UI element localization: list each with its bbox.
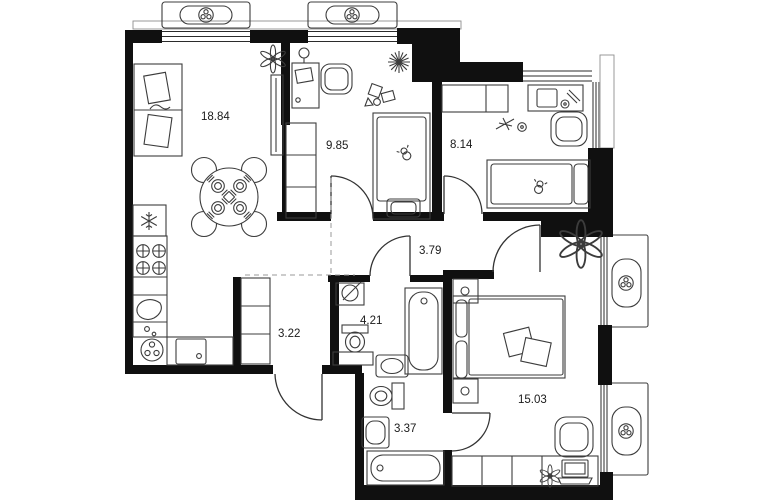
room-label-child-2: 8.14 — [450, 139, 473, 151]
room-label-living-kitchen: 18.84 — [201, 111, 230, 123]
snowflake-icon — [141, 212, 157, 230]
lamp-icon — [299, 48, 309, 58]
ac-unit-top-right — [308, 2, 397, 28]
wall-segment — [443, 275, 452, 375]
window-top-1 — [162, 30, 250, 43]
bathtub-1 — [405, 288, 442, 374]
fan-icon — [619, 424, 633, 438]
wall-segment — [355, 485, 613, 500]
bedroom-15-03 — [452, 220, 604, 487]
counter-sink — [176, 339, 206, 364]
floor-plan-canvas: 18.84 9.85 8.14 3.79 3.22 4.21 15.03 3.3… — [0, 0, 770, 500]
bathtub-2 — [367, 451, 444, 485]
toys-icon — [365, 84, 395, 106]
wardrobe-2 — [442, 85, 508, 112]
toy-icon — [531, 179, 547, 195]
fan-icon — [619, 276, 633, 290]
laptop-icon — [558, 460, 592, 484]
single-bed-1 — [373, 113, 430, 219]
desk-2 — [528, 85, 583, 111]
desk-1 — [292, 48, 319, 108]
door-room-9-85 — [331, 176, 373, 218]
door-bedroom — [493, 225, 540, 272]
wall-segment — [432, 82, 442, 213]
window-bedroom-right-1 — [600, 237, 608, 325]
wall-segment — [443, 375, 452, 413]
ball-icon — [561, 100, 569, 108]
door-room-8-14 — [444, 176, 482, 214]
desk-chair-3 — [555, 417, 593, 457]
room-label-wc: 3.37 — [394, 423, 416, 435]
room-label-corridor: 3.22 — [278, 328, 300, 340]
dining-set — [192, 158, 267, 237]
ac-unit-right-lower — [605, 383, 648, 475]
sink-drain — [197, 354, 202, 359]
hall-wardrobe — [241, 278, 270, 364]
stove — [137, 245, 166, 275]
toilet-1 — [342, 325, 368, 352]
corridor-3-22 — [241, 278, 270, 364]
floor-plan: 18.84 9.85 8.14 3.79 3.22 4.21 15.03 3.3… — [0, 0, 770, 500]
fan-icon — [345, 8, 359, 22]
kitchen-sink-bowl — [137, 300, 161, 320]
wall-segment — [233, 277, 241, 365]
wall-segment — [125, 30, 133, 373]
nightstand-2 — [453, 379, 478, 403]
pillow — [456, 341, 467, 378]
toilet-2 — [370, 383, 404, 409]
room-label-bathroom: 4.21 — [360, 315, 382, 327]
faucet-icon — [145, 327, 150, 332]
electrical-panel — [336, 282, 364, 305]
bathroom-4-21 — [333, 282, 442, 377]
wall-segment — [328, 275, 370, 282]
door-entrance — [275, 374, 322, 420]
toy-icon — [397, 145, 415, 163]
desk-chair-1 — [321, 64, 352, 94]
desk-chair-2 — [551, 112, 587, 146]
wall-segment — [125, 30, 163, 43]
toy-plane-icon — [496, 118, 526, 131]
ac-unit-top-left — [162, 2, 250, 28]
corner-sofa — [134, 64, 182, 156]
kitchen-block — [133, 205, 233, 365]
pencil-icon — [567, 90, 580, 103]
single-bed-2 — [487, 160, 590, 208]
kitchen-counter-bottom — [167, 337, 233, 365]
fan-icon — [199, 8, 213, 22]
window-room-8-14-top — [523, 70, 592, 82]
wall-segment — [437, 62, 523, 82]
wardrobe-desk-unit — [452, 456, 598, 487]
door-bathroom-4-21 — [370, 236, 410, 276]
wall-segment — [598, 325, 612, 385]
window-top-2 — [308, 30, 397, 43]
wall-segment — [277, 212, 331, 221]
wall-segment — [281, 42, 290, 125]
window-ledge-right — [600, 55, 614, 148]
sink-1 — [376, 355, 408, 377]
wall-segment — [322, 365, 362, 374]
room-label-child-1: 9.85 — [326, 140, 348, 152]
pillow — [456, 300, 467, 337]
sink-2 — [362, 417, 389, 448]
window-room-8-14-right — [592, 82, 600, 148]
room-label-hallway: 3.79 — [419, 245, 441, 257]
room-9-85 — [286, 48, 430, 219]
room-living-kitchen — [133, 45, 286, 365]
starburst-icon — [388, 51, 410, 73]
wardrobe-1 — [286, 123, 316, 218]
wall-segment — [125, 365, 273, 374]
deco-pillow — [521, 338, 551, 367]
double-bed — [453, 296, 565, 378]
ac-unit-right-upper — [605, 235, 648, 327]
window-bedroom-right-2 — [600, 385, 608, 472]
faucet-icon — [152, 332, 156, 336]
washing-machine — [141, 339, 163, 361]
door-wc-3-37 — [452, 413, 490, 451]
dining-table — [200, 168, 258, 226]
wall-segment — [355, 373, 364, 487]
wall-segment — [250, 30, 308, 43]
room-label-bedroom: 15.03 — [518, 394, 547, 406]
